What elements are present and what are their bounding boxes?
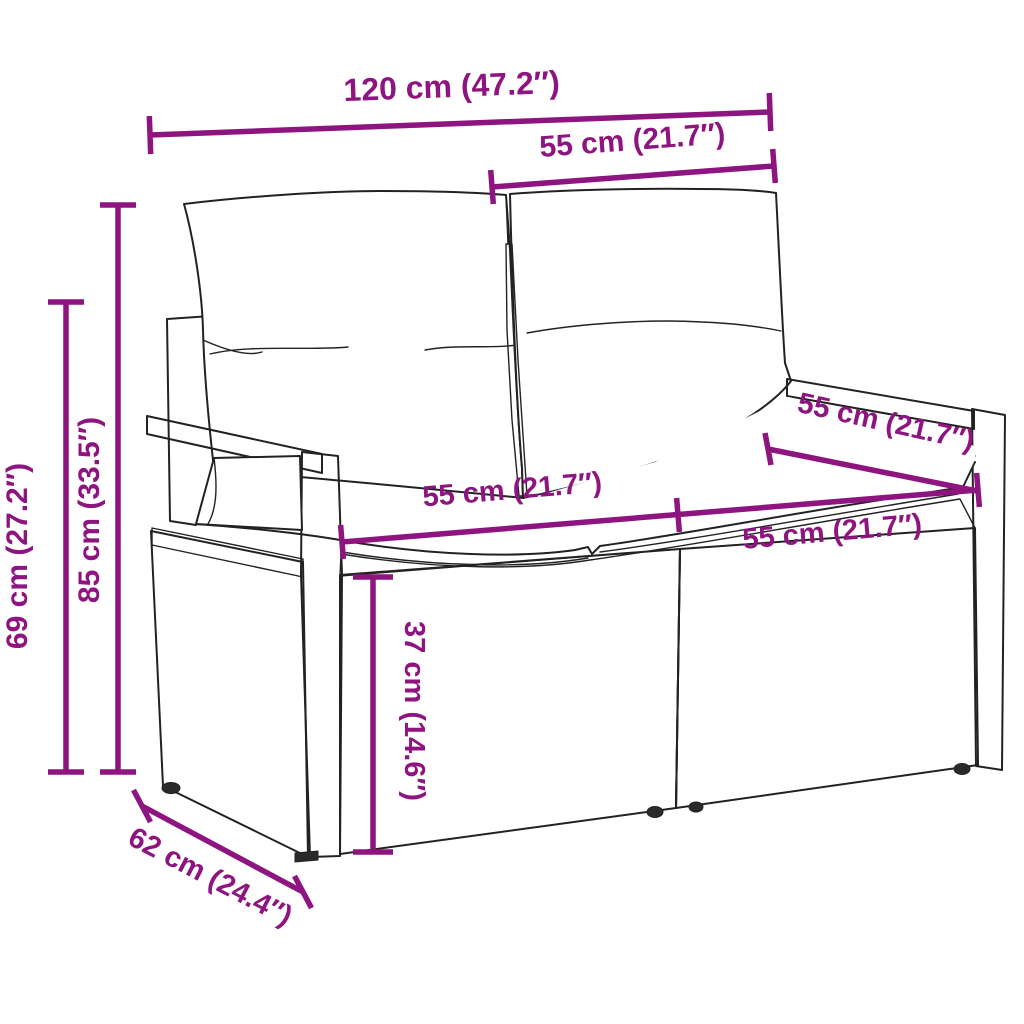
- dimension-armrest-height: 69 cm (27.2″): [1, 302, 84, 772]
- dimension-total-height: 85 cm (33.5″): [73, 205, 136, 772]
- dimension-diagram: 120 cm (47.2″) 55 cm (21.7″) 85 cm (33.5…: [0, 0, 1024, 1024]
- sofa-base-front-left: [340, 549, 680, 854]
- sofa-base-front-right: [676, 528, 978, 808]
- sofa-foot: [954, 764, 970, 775]
- dimension-label-total-height: 85 cm (33.5″): [73, 417, 106, 603]
- dimension-label-armrest-height: 69 cm (27.2″): [1, 463, 34, 649]
- sofa-base-side-panel: [151, 531, 308, 857]
- sofa-foot: [689, 802, 703, 812]
- dimension-label-seat-height: 37 cm (14.6″): [398, 621, 430, 801]
- dimension-total-depth: 62 cm (24.4″): [123, 790, 312, 933]
- sofa-back-cushion-left: [184, 191, 523, 498]
- sofa-foot: [162, 783, 180, 794]
- sofa-armrest-opening: [196, 456, 302, 530]
- sofa-foot: [295, 851, 318, 862]
- dimension-label-backrest-width: 55 cm (21.7″): [538, 117, 726, 164]
- dimension-label-total-width: 120 cm (47.2″): [343, 64, 561, 108]
- sofa-dimension-drawing: 120 cm (47.2″) 55 cm (21.7″) 85 cm (33.5…: [0, 0, 1024, 1024]
- sofa-foot: [647, 807, 663, 818]
- dimension-seat-height: 37 cm (14.6″): [353, 577, 430, 852]
